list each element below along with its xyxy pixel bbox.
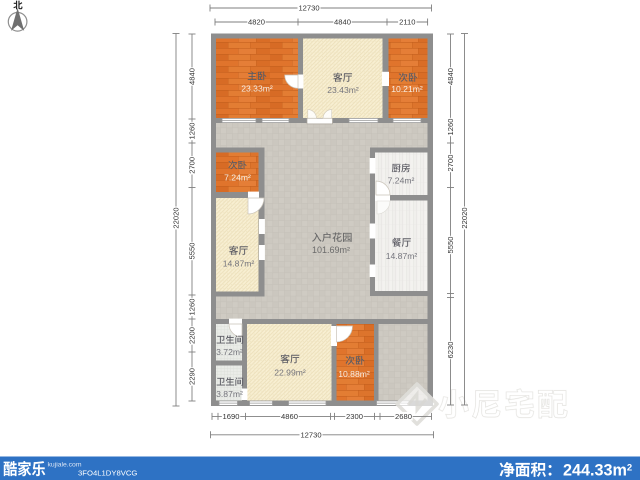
- svg-text:10.88m²: 10.88m²: [338, 369, 370, 379]
- svg-text:4820: 4820: [248, 18, 265, 27]
- svg-text:2700: 2700: [446, 155, 455, 172]
- svg-text:1260: 1260: [188, 299, 197, 316]
- svg-text:3.87m²: 3.87m²: [216, 389, 243, 399]
- svg-text:7.24m²: 7.24m²: [388, 176, 415, 186]
- svg-text:22020: 22020: [172, 207, 181, 228]
- svg-text:244.33m2: 244.33m2: [563, 462, 632, 480]
- svg-text:3.72m²: 3.72m²: [216, 347, 243, 357]
- svg-text:2300: 2300: [346, 412, 363, 421]
- svg-text:23.33m²: 23.33m²: [241, 84, 273, 94]
- svg-text:1690: 1690: [223, 412, 240, 421]
- svg-text:2680: 2680: [395, 412, 412, 421]
- svg-text:4840: 4840: [188, 68, 197, 85]
- svg-text:22020: 22020: [460, 207, 469, 228]
- svg-text:4860: 4860: [281, 412, 298, 421]
- svg-text:2200: 2200: [188, 327, 197, 344]
- svg-text:12730: 12730: [298, 4, 319, 13]
- svg-text:4840: 4840: [334, 18, 351, 27]
- svg-text:1260: 1260: [188, 123, 197, 140]
- svg-text:kujiale.com: kujiale.com: [48, 461, 82, 468]
- svg-text:5550: 5550: [188, 243, 197, 260]
- svg-text:14.87m²: 14.87m²: [223, 259, 255, 269]
- svg-text:1260: 1260: [446, 119, 455, 136]
- svg-text:3FO4L1DY8VCG: 3FO4L1DY8VCG: [78, 468, 137, 477]
- svg-text:2290: 2290: [188, 368, 197, 385]
- svg-text:6230: 6230: [446, 342, 455, 359]
- svg-text:101.69m²: 101.69m²: [312, 245, 350, 255]
- svg-text:5550: 5550: [446, 237, 455, 254]
- svg-text:10.21m²: 10.21m²: [391, 84, 423, 94]
- svg-text:2110: 2110: [399, 18, 415, 27]
- svg-text:7.24m²: 7.24m²: [224, 173, 251, 183]
- svg-text:23.43m²: 23.43m²: [327, 85, 359, 95]
- svg-text:22.99m²: 22.99m²: [274, 368, 306, 378]
- svg-text:2700: 2700: [188, 157, 197, 174]
- svg-text:4840: 4840: [446, 68, 455, 85]
- svg-text:12730: 12730: [300, 430, 321, 439]
- svg-text:14.87m²: 14.87m²: [386, 251, 418, 261]
